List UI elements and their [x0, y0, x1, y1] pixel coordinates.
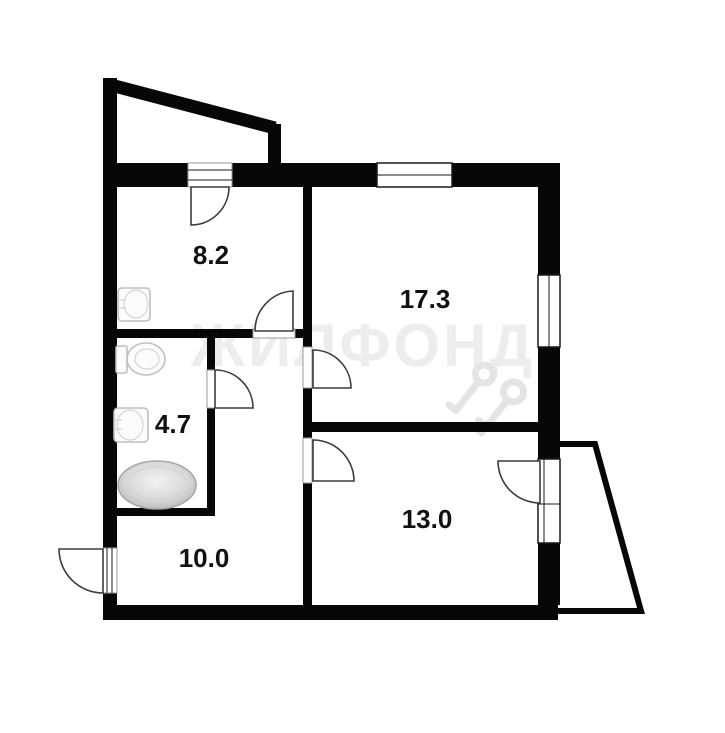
wall-bathroom-east-2: [207, 408, 215, 516]
wall-bottom: [103, 605, 558, 620]
threshold-bedroom: [303, 438, 312, 483]
wall-top-1: [103, 163, 188, 187]
toilet: [116, 343, 165, 375]
bathtub: [118, 461, 196, 509]
threshold-kitchen-balcony: [188, 163, 232, 187]
wall-center-3: [303, 483, 312, 605]
wall-center-1: [303, 187, 312, 347]
wall-top-2: [232, 163, 377, 187]
wall-kitchen-south-1: [117, 329, 253, 338]
kitchen-sink: [118, 288, 150, 321]
floor-plan-canvas: ЖИЛФОНД: [0, 0, 725, 733]
wall-kitchen-south-2: [295, 329, 303, 338]
wall-center-2: [303, 388, 312, 438]
wall-right-1: [538, 163, 560, 275]
window-living-room-top: [377, 163, 452, 187]
window-living-room-right: [538, 275, 560, 347]
wash-basin: [114, 408, 148, 442]
threshold-entrance: [103, 548, 117, 593]
wall-right-2: [538, 347, 560, 459]
wall-right-3: [538, 543, 560, 605]
label-living-room: 17.3: [400, 284, 451, 314]
balcony-door-window-block: [538, 459, 560, 543]
wall-left-upper: [103, 78, 117, 548]
threshold-bathroom: [207, 370, 215, 408]
label-bedroom: 13.0: [402, 504, 453, 534]
threshold-living-room: [303, 347, 312, 388]
wall-bedroom-north: [312, 422, 538, 432]
wall-bathroom-east-1: [207, 338, 215, 370]
floor-plan-page: ЖИЛФОНД: [0, 0, 725, 733]
label-hallway: 10.0: [179, 543, 230, 573]
label-kitchen: 8.2: [193, 240, 229, 270]
watermark-text: ЖИЛФОНД: [190, 312, 535, 379]
label-bathroom: 4.7: [155, 409, 191, 439]
